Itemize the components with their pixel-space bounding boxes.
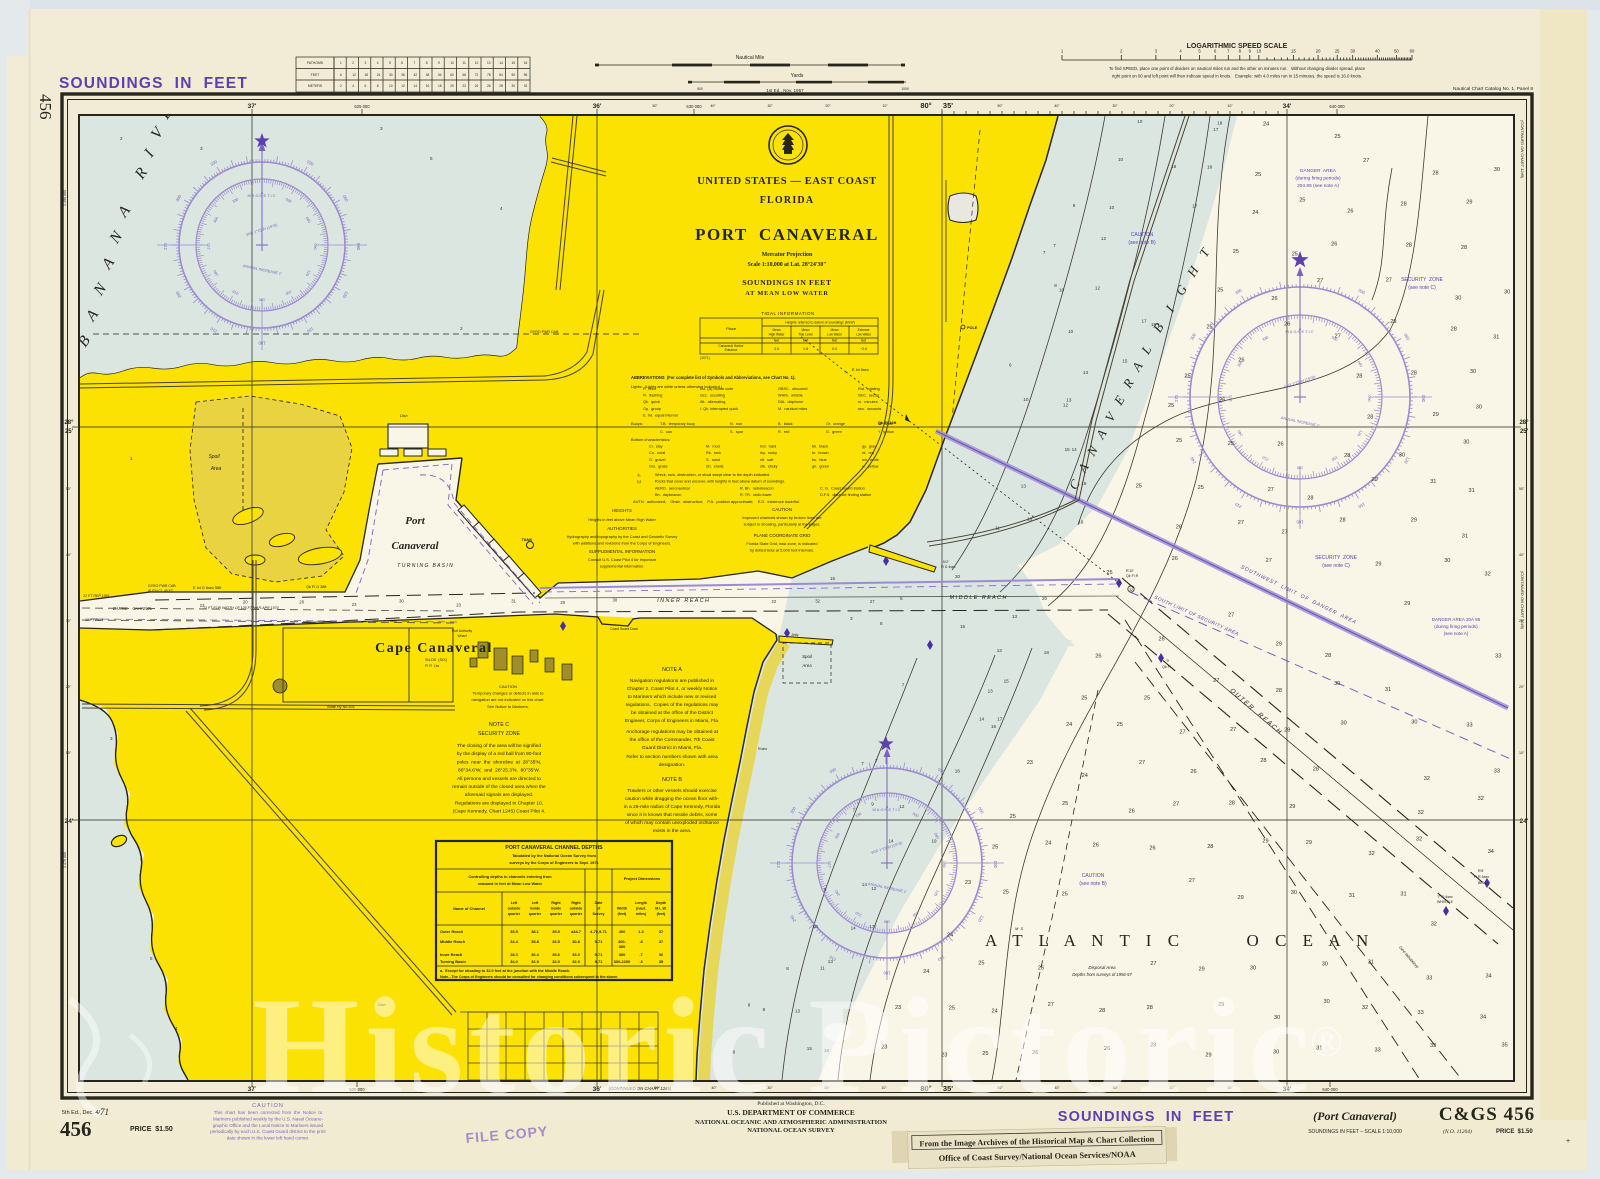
svg-text:34: 34: [1486, 973, 1492, 979]
svg-text:HEIGHTS: HEIGHTS: [612, 508, 632, 513]
svg-text:M.L.W.: M.L.W.: [655, 906, 666, 910]
svg-text:inside: inside: [551, 906, 561, 910]
svg-text:T.B. temporary buoy: T.B. temporary buoy: [660, 422, 695, 426]
svg-text:17: 17: [1213, 127, 1219, 132]
svg-text:10": 10": [882, 104, 888, 108]
svg-text:25: 25: [1217, 288, 1223, 294]
svg-text:SOUNDINGS IN FEET: SOUNDINGS IN FEET: [1058, 1109, 1234, 1125]
svg-text:29: 29: [1284, 728, 1290, 734]
svg-text:24: 24: [475, 84, 479, 88]
svg-text:13: 13: [795, 1009, 801, 1014]
svg-text:0.0: 0.0: [832, 347, 837, 351]
svg-text:10: 10: [813, 924, 819, 929]
svg-text:All persons and vessels are di: All persons and vessels are directed to: [457, 776, 541, 782]
svg-text:1: 1: [340, 61, 342, 65]
svg-text:9: 9: [824, 887, 827, 892]
svg-text:20": 20": [66, 685, 72, 689]
svg-text:13: 13: [988, 689, 994, 694]
svg-text:84: 84: [499, 73, 503, 77]
svg-text:31: 31: [1430, 479, 1436, 485]
svg-text:14: 14: [851, 926, 857, 931]
svg-text:28: 28: [1313, 766, 1319, 772]
svg-text:5th Ed., Dec. 4/: 5th Ed., Dec. 4/: [62, 1110, 100, 1116]
svg-text:18: 18: [365, 73, 369, 77]
svg-text:090: 090: [1367, 395, 1371, 401]
svg-text:stk. sticky: stk. sticky: [760, 464, 778, 468]
svg-text:Outer Reach: Outer Reach: [440, 929, 464, 934]
svg-text:090: 090: [942, 861, 946, 867]
svg-text:3: 3: [110, 736, 113, 741]
svg-text:14: 14: [862, 882, 868, 887]
svg-text:SECURITY ZONE: SECURITY ZONE: [478, 731, 521, 737]
svg-text:Florida State Grid, east zone,: Florida State Grid, east zone, is indica…: [746, 541, 817, 546]
svg-text:34.0: 34.0: [510, 959, 518, 964]
svg-text:204.85 (see note A): 204.85 (see note A): [1297, 183, 1339, 189]
svg-text:of which may contain unexplode: of which may contain unexploded ordnance: [625, 820, 719, 826]
svg-text:31: 31: [1349, 893, 1355, 899]
svg-text:35.8: 35.8: [531, 939, 539, 944]
svg-text:25: 25: [1198, 485, 1204, 491]
svg-text:gn. green: gn. green: [812, 464, 829, 468]
svg-text:outside: outside: [508, 906, 521, 910]
svg-text:wh. white: wh. white: [862, 458, 879, 462]
svg-text:SUPPLEMENTAL INFORMATION: SUPPLEMENTAL INFORMATION: [589, 549, 655, 554]
svg-text:13: 13: [487, 61, 491, 65]
svg-text:yl. yellow: yl. yellow: [862, 464, 879, 468]
svg-text:MAGNETIC: MAGNETIC: [247, 193, 276, 198]
svg-text:Cl. clay: Cl. clay: [649, 445, 663, 449]
svg-text:22: 22: [463, 84, 467, 88]
svg-text:32: 32: [1369, 851, 1375, 857]
svg-text:feet: feet: [861, 339, 866, 343]
svg-text:28: 28: [1276, 688, 1282, 694]
svg-text:PRICE $1.50: PRICE $1.50: [130, 1126, 173, 1133]
svg-text:35': 35': [943, 101, 953, 110]
svg-text:(during firing periods): (during firing periods): [1295, 176, 1341, 182]
svg-text:20": 20": [825, 104, 831, 108]
svg-text:29: 29: [1306, 840, 1312, 846]
svg-text:12: 12: [871, 886, 877, 891]
svg-text:28: 28: [1432, 171, 1438, 177]
svg-text:7: 7: [853, 808, 856, 813]
svg-text:5: 5: [900, 596, 903, 601]
svg-text:32.0: 32.0: [552, 959, 560, 964]
svg-text:by the display of a red ball f: by the display of a red ball from 90-foo…: [457, 751, 542, 757]
svg-text:50": 50": [1519, 487, 1525, 491]
svg-text:exists in the area.: exists in the area.: [653, 828, 691, 834]
svg-text:26: 26: [1095, 653, 1101, 659]
svg-text:DANGER AREA 20A 85: DANGER AREA 20A 85: [1432, 617, 1481, 622]
svg-text:25: 25: [992, 844, 998, 850]
svg-text:180: 180: [259, 298, 265, 302]
svg-text:24: 24: [1263, 122, 1269, 128]
svg-text:24: 24: [1252, 210, 1258, 216]
svg-text:Canaveral: Canaveral: [391, 540, 439, 552]
svg-text:090: 090: [313, 243, 317, 249]
svg-text:8: 8: [377, 84, 379, 88]
svg-text:periodically by each U.S. Coas: periodically by each U.S. Coast Guard di…: [210, 1129, 326, 1134]
svg-text:bk. black: bk. black: [812, 445, 828, 449]
svg-text:9-71: 9-71: [595, 959, 604, 964]
svg-text:625 000: 625 000: [354, 104, 370, 109]
svg-text:15: 15: [1004, 679, 1010, 684]
svg-text:Regulations are displayed in C: Regulations are displayed in Chapter 10,: [455, 800, 543, 806]
svg-text:(Cape Kennedy, Chart 1245) Coa: (Cape Kennedy, Chart 1245) Coast Pilot 4…: [453, 809, 546, 815]
svg-text:(CONTINUED ON CHART 1245): (CONTINUED ON CHART 1245): [1520, 571, 1525, 630]
svg-text:30": 30": [767, 104, 773, 108]
svg-text:34.4: 34.4: [510, 939, 518, 944]
svg-text:30: 30: [1399, 453, 1405, 459]
svg-text:29: 29: [1466, 199, 1472, 205]
svg-text:10: 10: [1118, 157, 1124, 162]
svg-text:NOTE B: NOTE B: [662, 777, 682, 783]
svg-text:12 FT FOR WIDTH OF 125 FT MAR-: 12 FT FOR WIDTH OF 125 FT MAR-APR 1970: [203, 606, 279, 610]
svg-text:16: 16: [524, 61, 528, 65]
svg-text:inside: inside: [530, 906, 540, 910]
svg-text:9: 9: [438, 61, 440, 65]
svg-text:PORT CANAVERAL CHANNEL DEPTHS: PORT CANAVERAL CHANNEL DEPTHS: [505, 845, 603, 851]
svg-text:090: 090: [1421, 395, 1426, 403]
svg-text:10": 10": [1227, 104, 1233, 108]
svg-text:090: 090: [993, 861, 998, 869]
svg-text:Consult U.S. Coast Pilot 4 for: Consult U.S. Coast Pilot 4 for important: [588, 557, 657, 562]
svg-text:'7' Fl 4sec: '7' Fl 4sec: [1437, 895, 1453, 899]
svg-text:32: 32: [524, 84, 528, 88]
svg-text:CAUTION: CAUTION: [1082, 873, 1105, 879]
svg-text:30: 30: [1291, 890, 1297, 896]
svg-text:T U R N I N G B A S I N: T U R N I N G B A S I N: [397, 563, 453, 569]
svg-text:Tide Level: Tide Level: [798, 333, 813, 337]
svg-text:(1071): (1071): [700, 356, 710, 360]
svg-text:27: 27: [1266, 558, 1272, 564]
svg-text:Qk. quick: Qk. quick: [643, 400, 660, 404]
svg-text:31: 31: [1462, 534, 1468, 540]
svg-text:30: 30: [1334, 681, 1340, 687]
svg-text:30": 30": [66, 619, 72, 623]
svg-text:13: 13: [1021, 483, 1027, 488]
svg-text:20: 20: [450, 84, 454, 88]
svg-text:M. mud: M. mud: [706, 445, 720, 449]
svg-text:26: 26: [1190, 769, 1196, 775]
svg-text:27: 27: [1363, 158, 1369, 164]
svg-text:aforesaid signals are displaye: aforesaid signals are displayed.: [465, 792, 534, 798]
svg-text:LOGARITHMIC SPEED SCALE: LOGARITHMIC SPEED SCALE: [1187, 43, 1288, 50]
svg-text:28: 28: [1344, 453, 1350, 459]
svg-text:33: 33: [1375, 1048, 1381, 1054]
svg-text:MAGNETIC: MAGNETIC: [1285, 329, 1314, 334]
svg-text:designation.: designation.: [659, 762, 685, 768]
svg-text:poles near the shoreline a: poles near the shoreline at 28°35′N,: [457, 759, 541, 765]
svg-text:10": 10": [1519, 751, 1525, 755]
svg-text:(Port Canaveral): (Port Canaveral): [1313, 1109, 1397, 1123]
svg-text:date shown in the lower left h: date shown in the lower left hand corner…: [227, 1136, 309, 1141]
svg-text:1 470 000: 1 470 000: [63, 852, 67, 868]
svg-text:33: 33: [1418, 1010, 1424, 1016]
svg-text:18: 18: [1207, 165, 1213, 170]
svg-text:Navigation regulations are pub: Navigation regulations are published in: [630, 678, 715, 684]
svg-text:Depth: Depth: [656, 901, 666, 905]
svg-text:30: 30: [1324, 999, 1330, 1005]
svg-text:180: 180: [1296, 520, 1304, 525]
svg-text:16: 16: [991, 724, 997, 729]
svg-text:27: 27: [1150, 961, 1156, 967]
svg-text:72: 72: [475, 73, 479, 77]
svg-text:25: 25: [1335, 49, 1340, 54]
svg-text:GYRO PWR CAB: GYRO PWR CAB: [530, 330, 559, 334]
svg-text:28: 28: [499, 84, 503, 88]
svg-text:30: 30: [1350, 49, 1355, 54]
svg-text:42: 42: [414, 73, 418, 77]
svg-text:13: 13: [1083, 370, 1089, 375]
svg-text:32: 32: [1362, 1005, 1368, 1011]
svg-text:Mercator Projection: Mercator Projection: [762, 252, 813, 258]
svg-text:12: 12: [1063, 403, 1069, 408]
svg-text:26: 26: [1238, 357, 1244, 363]
svg-text:30: 30: [1455, 295, 1461, 301]
svg-text:Scale 1:10,000 at Lat. 28°24′3: Scale 1:10,000 at Lat. 28°24′30″: [748, 261, 827, 268]
svg-text:34': 34': [1283, 103, 1292, 110]
svg-text:40": 40": [1519, 553, 1525, 557]
svg-text:Temporary changes or defects i: Temporary changes or defects in aids to: [473, 691, 545, 696]
svg-text:Bottom characteristics:: Bottom characteristics:: [631, 437, 670, 442]
svg-text:6: 6: [340, 73, 342, 77]
svg-text:remain outside of the closed a: remain outside of the closed area when t…: [452, 784, 546, 790]
svg-text:hrd. hard: hrd. hard: [760, 445, 776, 449]
svg-text:feet: feet: [803, 339, 808, 343]
svg-text:10: 10: [389, 84, 393, 88]
svg-text:33: 33: [1426, 976, 1432, 982]
svg-text:gy. gray: gy. gray: [862, 445, 876, 449]
svg-text:CAUTION: CAUTION: [772, 507, 792, 512]
svg-text:25: 25: [1003, 889, 1009, 895]
svg-text:Refer to section numbers shown: Refer to section numbers shown with area: [626, 754, 718, 760]
svg-text:27: 27: [1230, 727, 1236, 733]
svg-text:25: 25: [1062, 801, 1068, 807]
svg-text:24: 24: [1082, 773, 1088, 779]
svg-text:25: 25: [1117, 722, 1123, 728]
svg-text:30.8: 30.8: [572, 939, 580, 944]
svg-text:500: 500: [697, 87, 703, 91]
svg-text:13: 13: [997, 648, 1003, 653]
svg-text:quarter: quarter: [570, 912, 583, 916]
svg-text:Wreck, rock, obstruction, or s: Wreck, rock, obstruction, or shoal swept…: [655, 473, 770, 477]
svg-text:FLORIDA: FLORIDA: [760, 195, 815, 206]
svg-text:10: 10: [1059, 287, 1065, 292]
svg-text:9: 9: [871, 802, 874, 807]
svg-text:9: 9: [1073, 203, 1076, 208]
svg-text:50": 50": [997, 104, 1003, 108]
svg-text:Guard District in Miami, Fla.: Guard District in Miami, Fla.: [642, 745, 702, 751]
svg-text:subject to shoaling, particula: subject to shoaling, particularly at the…: [744, 522, 821, 527]
svg-text:180: 180: [258, 341, 266, 346]
svg-text:1: 1: [130, 456, 133, 461]
svg-text:7: 7: [1053, 243, 1056, 248]
svg-text:D.F.S. distance finding stati: D.F.S. distance finding station: [820, 493, 871, 497]
svg-text:456: 456: [60, 1117, 92, 1141]
svg-text:in a 25-mile radius of Cape Ke: in a 25-mile radius of Cape Kennedy, Flo…: [624, 804, 721, 810]
svg-text:2: 2: [140, 856, 143, 861]
svg-text:2: 2: [352, 61, 354, 65]
svg-text:PLANE COORDINATE GRID: PLANE COORDINATE GRID: [754, 533, 811, 538]
svg-text:(naut.: (naut.: [636, 906, 646, 910]
svg-text:25: 25: [1062, 891, 1068, 897]
svg-text:SOUNDINGS IN FEET – SCALE 1:10: SOUNDINGS IN FEET – SCALE 1:10,000: [1308, 1129, 1402, 1135]
svg-text:4: 4: [352, 84, 354, 88]
svg-text:37': 37': [248, 103, 257, 110]
svg-text:(during firing periods): (during firing periods): [1434, 624, 1478, 629]
svg-text:10": 10": [66, 751, 72, 755]
svg-text:24: 24: [1066, 722, 1072, 728]
svg-text:6: 6: [365, 84, 367, 88]
svg-text:19: 19: [932, 839, 938, 844]
svg-text:Survey: Survey: [593, 912, 605, 916]
svg-text:B. black: B. black: [778, 422, 793, 426]
svg-text:Mean: Mean: [831, 328, 839, 332]
svg-text:25: 25: [1136, 484, 1142, 490]
svg-text:R. Bn. radiobeacon: R. Bn. radiobeacon: [740, 486, 774, 490]
svg-text:26: 26: [1347, 209, 1353, 215]
svg-text:NOTE C: NOTE C: [489, 722, 509, 728]
svg-text:12: 12: [899, 804, 905, 809]
svg-text:Trawlers or other vessels shou: Trawlers or other vessels should exercis…: [627, 788, 717, 794]
svg-text:27: 27: [1238, 520, 1244, 526]
svg-text:28°: 28°: [64, 420, 74, 426]
svg-text:12 FT REP: 12 FT REP: [85, 618, 103, 622]
svg-text:Area: Area: [801, 663, 812, 668]
svg-text:36': 36': [593, 103, 602, 110]
svg-text:G. gravel: G. gravel: [649, 458, 666, 462]
svg-text:11: 11: [995, 526, 1000, 531]
svg-text:13: 13: [828, 959, 834, 964]
svg-text:Middle Reach: Middle Reach: [440, 939, 466, 944]
svg-text:66: 66: [463, 73, 467, 77]
svg-text:Controlling depths in channels: Controlling depths in channels entering …: [468, 874, 552, 879]
svg-text:m. minutes: m. minutes: [858, 400, 878, 404]
svg-text:180: 180: [1297, 466, 1303, 470]
svg-text:Dish: Dish: [400, 414, 408, 418]
svg-text:640 000: 640 000: [1329, 104, 1345, 109]
svg-text:54: 54: [438, 73, 442, 77]
svg-text:90: 90: [512, 73, 516, 77]
svg-text:Published at Washington, D.C.: Published at Washington, D.C.: [757, 1101, 825, 1107]
svg-text:Mariners published weekly by t: Mariners published weekly by the U.S. Na…: [213, 1116, 324, 1121]
svg-text:25: 25: [1299, 198, 1305, 204]
svg-text:sec. seconds: sec. seconds: [858, 407, 881, 411]
svg-text:20": 20": [1169, 104, 1175, 108]
svg-text:5: 5: [389, 61, 391, 65]
svg-text:40": 40": [1054, 104, 1060, 108]
svg-text:180: 180: [884, 920, 890, 924]
svg-text:Gp. group: Gp. group: [643, 407, 661, 411]
svg-text:State Hy No 401: State Hy No 401: [327, 705, 355, 709]
svg-text:31: 31: [511, 598, 516, 603]
svg-text:Place: Place: [726, 326, 737, 331]
svg-text:270: 270: [828, 861, 832, 867]
svg-text:TANK: TANK: [522, 537, 533, 542]
svg-text:Jetty: Jetty: [790, 633, 799, 637]
svg-text:33: 33: [1494, 768, 1500, 774]
svg-text:27: 27: [1179, 730, 1185, 736]
svg-text:400: 400: [619, 929, 626, 934]
svg-text:Or. orange: Or. orange: [826, 422, 845, 426]
svg-text:23: 23: [965, 880, 971, 886]
svg-text:Wharf: Wharf: [457, 634, 466, 638]
svg-text:28: 28: [1325, 653, 1331, 659]
svg-text:Ruins: Ruins: [758, 747, 767, 751]
svg-text:29: 29: [1411, 518, 1417, 524]
svg-text:AUTH CL 45 FT: AUTH CL 45 FT: [148, 589, 174, 593]
svg-text:33: 33: [1430, 1043, 1436, 1049]
svg-text:16: 16: [1171, 164, 1177, 169]
svg-text:31: 31: [1400, 892, 1406, 898]
svg-text:25: 25: [1292, 252, 1298, 258]
svg-text:23: 23: [200, 603, 205, 608]
svg-text:28: 28: [1307, 495, 1313, 501]
svg-text:BARGE CHANNEL: BARGE CHANNEL: [113, 606, 153, 611]
svg-text:27: 27: [1386, 277, 1392, 283]
svg-text:33: 33: [1466, 723, 1472, 729]
svg-text:38.1: 38.1: [531, 929, 539, 934]
svg-text:18: 18: [1151, 322, 1157, 327]
svg-text:NATIONAL OCEAN SURVEY: NATIONAL OCEAN SURVEY: [747, 1127, 835, 1134]
svg-text:15: 15: [512, 61, 516, 65]
svg-text:16: 16: [955, 768, 961, 773]
svg-text:Fl. flashing: Fl. flashing: [643, 394, 662, 398]
svg-text:Low Water: Low Water: [827, 333, 843, 337]
svg-text:7: 7: [1043, 250, 1046, 255]
svg-text:13: 13: [1012, 614, 1018, 619]
svg-text:rd. red: rd. red: [862, 451, 874, 455]
svg-text:®: ®: [1310, 1017, 1343, 1066]
svg-text:25: 25: [1010, 814, 1016, 820]
svg-text:7: 7: [861, 761, 864, 766]
svg-text:quarter: quarter: [529, 912, 542, 916]
svg-text:35: 35: [1502, 1043, 1508, 1049]
svg-text:40": 40": [710, 104, 716, 108]
svg-text:37: 37: [659, 939, 663, 944]
svg-text:10: 10: [450, 61, 454, 65]
svg-text:Spoil: Spoil: [208, 454, 220, 460]
svg-text:CAUTION: CAUTION: [1131, 232, 1154, 238]
svg-text:456: 456: [36, 94, 55, 120]
svg-text:27: 27: [1189, 878, 1195, 884]
svg-text:630 000: 630 000: [686, 104, 702, 109]
svg-text:18: 18: [438, 84, 442, 88]
svg-text:20: 20: [560, 600, 565, 605]
svg-text:R'8': R'8': [1478, 869, 1484, 873]
svg-text:CAUTION: CAUTION: [499, 684, 517, 689]
svg-text:Low Water: Low Water: [856, 333, 872, 337]
svg-text:(see note C): (see note C): [1322, 563, 1350, 569]
svg-text:SECURITY ZONE: SECURITY ZONE: [1401, 277, 1444, 283]
svg-text:6: 6: [1009, 363, 1012, 368]
svg-text:12: 12: [1095, 286, 1101, 291]
svg-text:Coast Guard Dock: Coast Guard Dock: [610, 627, 638, 631]
svg-text:Chapter 2, Coast Pilot 4, or w: Chapter 2, Coast Pilot 4, or weekly Noti…: [627, 686, 718, 692]
svg-text:NOTE A: NOTE A: [662, 667, 682, 673]
svg-text:(feet): (feet): [618, 912, 628, 916]
svg-text:3: 3: [850, 616, 853, 621]
svg-text:20: 20: [1042, 596, 1048, 601]
svg-text:R. red: R. red: [778, 430, 789, 434]
svg-text:26: 26: [1172, 556, 1178, 562]
svg-text:28: 28: [1411, 371, 1417, 377]
svg-text:This chart has been correc: This chart has been corrected from the N…: [214, 1110, 323, 1115]
svg-text:31: 31: [1368, 960, 1374, 966]
svg-text:CAUTION: CAUTION: [252, 1103, 284, 1109]
svg-text:24: 24: [947, 933, 953, 939]
svg-text:I N N E R R E A C H: I N N E R R E A C H: [657, 598, 709, 604]
